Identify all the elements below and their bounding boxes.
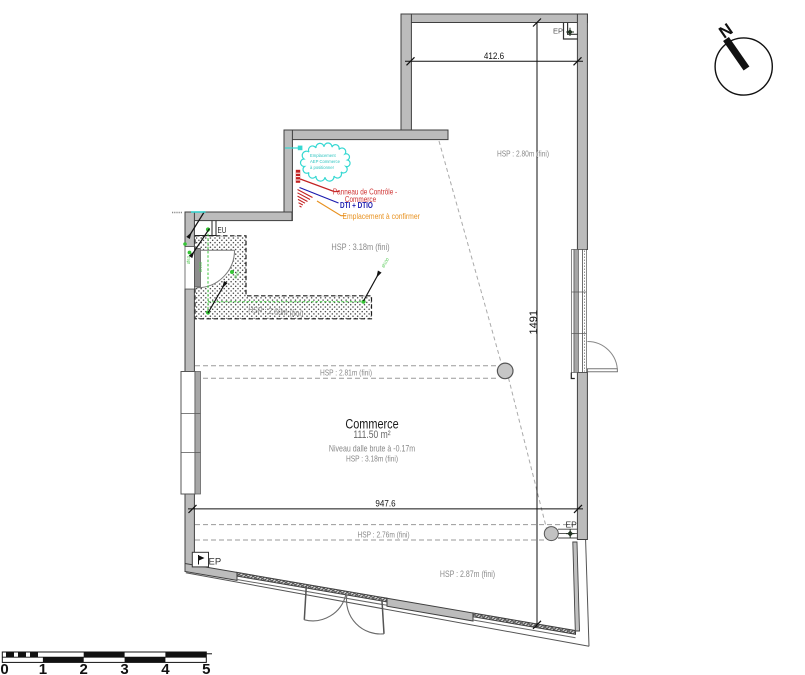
svg-text:Emplacement à confirmer: Emplacement à confirmer — [343, 211, 421, 221]
svg-text:Niveau dalle brute à -0.17m: Niveau dalle brute à -0.17m — [329, 444, 415, 454]
svg-text:Emplacement: Emplacement — [310, 153, 336, 158]
svg-text:Ø100: Ø100 — [381, 257, 391, 269]
svg-text:HSP : 2.81m (fini): HSP : 2.81m (fini) — [320, 368, 373, 378]
svg-text:2: 2 — [80, 661, 88, 675]
svg-text:N: N — [715, 20, 736, 43]
svg-text:947.6: 947.6 — [375, 498, 395, 509]
svg-text:HSP : 2.87m (fini): HSP : 2.87m (fini) — [440, 569, 495, 579]
svg-text:DTI + DTIO: DTI + DTIO — [340, 200, 373, 210]
svg-text:1: 1 — [39, 661, 47, 675]
svg-text:HSP : 3.18m (fini): HSP : 3.18m (fini) — [331, 241, 389, 252]
svg-text:EU: EU — [218, 225, 227, 235]
svg-text:3: 3 — [120, 661, 128, 675]
svg-text:HSP : 2.80m (fini): HSP : 2.80m (fini) — [497, 149, 550, 159]
svg-text:412.6: 412.6 — [484, 50, 504, 61]
svg-text:111.50 m²: 111.50 m² — [353, 429, 391, 441]
svg-text:0: 0 — [0, 661, 8, 675]
svg-text:EP: EP — [566, 520, 578, 530]
svg-text:EP: EP — [209, 557, 222, 568]
svg-text:Ø63: Ø63 — [186, 255, 191, 264]
svg-text:AEP Commerce: AEP Commerce — [310, 159, 341, 164]
svg-text:Ø100: Ø100 — [198, 261, 203, 272]
svg-text:4: 4 — [161, 661, 170, 675]
svg-text:5: 5 — [202, 661, 210, 675]
svg-text:1491: 1491 — [528, 310, 540, 334]
svg-text:HSP : 3.18m (fini): HSP : 3.18m (fini) — [346, 454, 399, 464]
svg-text:à positionner: à positionner — [310, 165, 335, 170]
svg-text:EP: EP — [553, 27, 563, 36]
svg-text:HSP : 2.76m (fini): HSP : 2.76m (fini) — [357, 530, 410, 540]
